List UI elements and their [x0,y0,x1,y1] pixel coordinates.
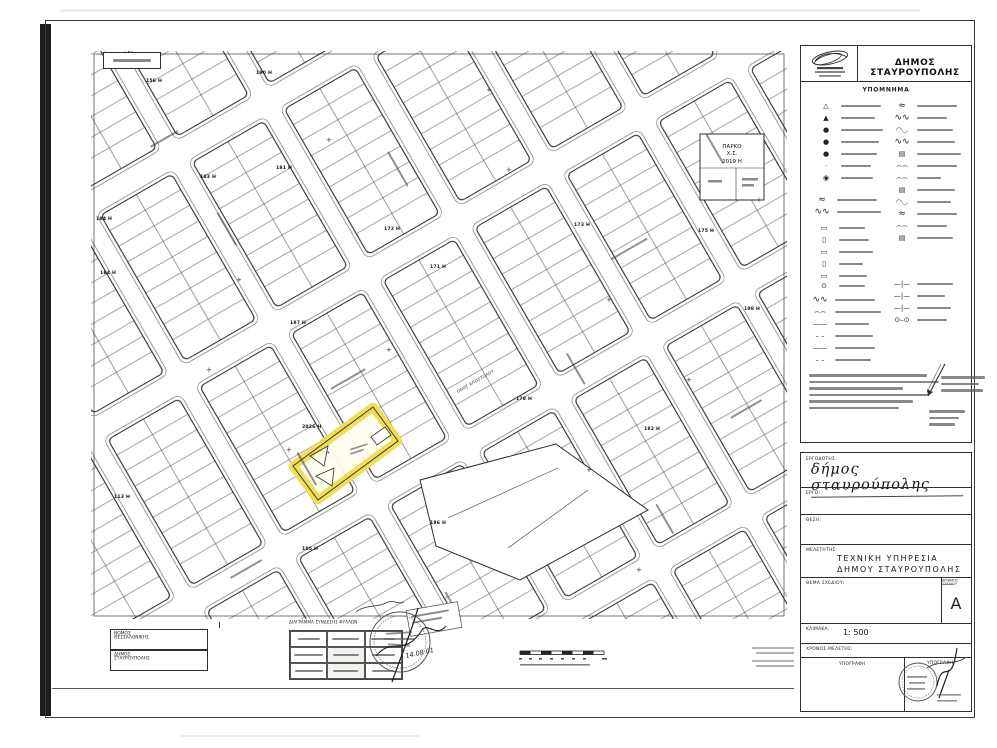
signature-stamp [893,642,973,712]
legend-label-smudge [839,263,863,266]
note-line [941,383,979,386]
note-line [809,387,903,390]
legend-label-smudge [837,199,877,202]
scan-marks [750,644,796,670]
legend-item: ∿∿ [805,294,881,306]
study-time-label: ΧΡΟΝΟΣ ΜΕΛΕΤΗΣ: [806,646,853,651]
legend-item: ● [811,136,883,148]
legend-item: ∿∿ [887,136,961,148]
sq2-symbol-icon: ▯ [809,260,839,268]
legend-item: ⊙–⊙ [887,314,953,326]
legend-item: ● [811,124,883,136]
municipality-box: ΔΗΜΟΣ ΣΤΑΥΡΟΥΠΟΛΗΣ [110,650,208,671]
legend-label-smudge [839,227,865,230]
legend-item: ⌢⌢ [887,172,961,184]
legend-item: – – [805,330,881,342]
prefecture-line2: ΘΕΣΣΑΛΟΝΙΚΗΣ [114,635,164,639]
note-line [809,400,913,403]
wave-symbol-icon: ∿∿ [887,114,917,122]
legend-item: ⌢⌢ [887,160,961,172]
legend-label-smudge [837,211,881,214]
arc-symbol-icon: ⌢⌢ [887,174,917,182]
arc-symbol-icon: ⌢⌢ [887,162,917,170]
park-block: ΠΑΡΚΟ Χ.Σ. 2019 Η [700,134,764,200]
panel-header: ΔΗΜΟΣ ΣΤΑΥΡΟΥΠΟΛΗΣ [800,45,972,83]
legend-label-smudge [917,165,957,168]
signature-label-left: ΥΠΟΓΡΑΦΗ [839,661,866,666]
legend-item: ∿∿ [807,206,881,218]
legend-label-smudge [835,335,873,338]
wave-symbol-icon: ∿∿ [807,208,837,216]
tick-symbol-icon: —|— [887,292,917,300]
wave-symbol-icon: ∿∿ [887,138,917,146]
sq-symbol-icon: ▭ [809,272,839,280]
legend-item: ● [811,148,883,160]
legend-item: ▤ [887,148,961,160]
legend-label-smudge [917,201,951,204]
legend-item: —|— [887,302,953,314]
pole-symbol-icon: ⊙ [809,282,839,290]
legend-label-smudge [917,283,953,286]
legend-label-smudge [835,347,875,350]
legend-item: ▤ [887,232,961,244]
scan-artifact [180,735,420,737]
header-divider [857,46,858,82]
project-row: ΕΡΓΟ: [801,487,971,515]
hatch-symbol-icon: ▤ [887,186,917,194]
hatch-symbol-icon: ▤ [887,234,917,242]
legend-item: ≈ [807,194,881,206]
legend-label-smudge [841,117,875,120]
legend-label-smudge [917,177,941,180]
drawing-number-label2: ΣΧΕΔΙΟΥ [942,582,954,585]
dash-symbol-icon: – – [805,356,835,364]
svg-text:Χ.Σ.: Χ.Σ. [727,151,738,157]
wave2-symbol-icon: ≈ [807,196,837,204]
blob-symbol-icon: ◠◡ [887,126,917,134]
legend-item: △ [811,100,883,112]
legend-item: —— [805,342,881,354]
arc-symbol-icon: ⌢⌢ [887,222,917,230]
stamp-date: 14.08.01 [405,646,435,660]
scale-row: ΚΛΙΜΑΚΑ: 1: 500 [801,623,971,644]
approval-stamp: 14.08.01 [348,596,478,688]
legend-label-smudge [917,319,947,322]
legend-label-smudge [841,177,873,180]
legend-item: ▯ [809,234,873,246]
legend-label-smudge [841,129,883,132]
svg-text:ΠΑΡΚΟ: ΠΑΡΚΟ [722,144,742,150]
tick-symbol-icon: —|— [887,304,917,312]
legend-item: ◉ [811,172,883,184]
legend-label-smudge [917,295,945,298]
legend-label-smudge [835,359,871,362]
note-line [941,376,985,379]
circ-symbol-icon: ● [811,138,841,146]
designer-row: ΜΕΛΕΤΗΤΗΣ: ΤΕΧΝΙΚΗ ΥΠΗΡΕΣΙΑ ΔΗΜΟΥ ΣΤΑΥΡΟ… [801,544,971,578]
note-line [809,374,927,377]
legend-label-smudge [835,311,881,314]
legend-label-smudge [841,165,871,168]
circ-symbol-icon: ● [811,150,841,158]
trif-symbol-icon: ▲ [811,114,841,122]
legend-label-smudge [841,153,877,156]
municipality-logo [807,49,853,79]
blob-symbol-icon: ◠◡ [887,198,917,206]
sq-symbol-icon: ▭ [809,224,839,232]
legend-label-smudge [839,251,873,254]
cadastral-map: ΠΑΡΚΟ Χ.Σ. 2019 Η + [88,48,790,622]
note-line [809,394,929,397]
designer-label: ΜΕΛΕΤΗΤΗΣ: [806,547,837,552]
legend-label-smudge [917,213,957,216]
legend-label-smudge [841,141,879,144]
prefecture-box: ΝΟΜΟΣ ΘΕΣΣΑΛΟΝΙΚΗΣ [110,629,208,650]
line-symbol-icon: —— [805,320,835,328]
tri-symbol-icon: △ [811,102,841,110]
svg-text:2019 Η: 2019 Η [722,159,742,165]
notes-block [941,372,985,396]
legend-label-smudge [835,323,869,326]
legend-item: ⊙ [809,280,865,292]
employer-label: ΕΡΓΟΔΟΤΗΣ: [806,456,837,461]
hatch-symbol-icon: ▤ [887,150,917,158]
sq2-symbol-icon: ▯ [809,236,839,244]
legend-label-smudge [917,225,947,228]
diagram-cell [290,663,327,679]
drawing-subject-box: ΘΕΜΑ ΣΧΕΔΙΟΥ: [801,577,942,624]
frame-divider [52,688,794,689]
designer-value-line2: ΔΗΜΟΥ ΣΤΑΥΡΟΥΠΟΛΗΣ [837,564,961,575]
dot-symbol-icon: · [811,162,841,170]
tick-symbol-icon: —|— [887,280,917,288]
location-label: ΘΕΣΗ: [806,517,821,522]
legend-label-smudge [917,129,953,132]
legend-label-smudge [841,105,881,108]
circ-symbol-icon: ● [811,126,841,134]
legend-item: ≈ [887,208,961,220]
legend-item: ▭ [809,246,873,258]
legend-label-smudge [839,275,867,278]
legend-item: ⌢⌢ [887,220,961,232]
diagram-cell [290,647,327,663]
legend-label-smudge [917,153,961,156]
legend-box: ΥΠΟΜΝΗΜΑ △▲●●●·◉ ≈∿∿ ▭▯▭▯▭ ⊙ ∿∿⌢⌢——– –——… [800,81,972,443]
dash-symbol-icon: – – [805,332,835,340]
legend-item: – – [805,354,881,366]
legend-item: ▯ [809,258,873,270]
legend-item: ◠◡ [887,124,961,136]
wave2-symbol-icon: ≈ [887,210,917,218]
scale-label: ΚΛΙΜΑΚΑ: [806,626,830,631]
legend-item: —|— [887,290,953,302]
notes-block [929,406,965,430]
legend-item: ≈ [887,100,961,112]
drawing-number-value: A [941,594,971,613]
legend-item: ▲ [811,112,883,124]
cdot-symbol-icon: ◉ [811,174,841,182]
legend-item: ∿∿ [887,112,961,124]
designer-value-line1: ΤΕΧΝΙΚΗ ΥΠΗΡΕΣΙΑ [837,553,961,564]
legend-item: ⌢⌢ [805,306,881,318]
note-line [929,410,965,413]
scale-value: 1: 500 [843,628,869,637]
plus-mark: + [326,450,330,456]
scan-artifact [60,9,920,12]
drawing-number-box: ΑΡΙΘΜΟΣ ΣΧΕΔΙΟΥ A [941,577,971,624]
note-line [929,423,955,426]
legend-label-smudge [917,141,955,144]
note-line [941,389,983,392]
legend-item: ▤ [887,184,961,196]
legend-label-smudge [835,299,875,302]
municipality-title: ΔΗΜΟΣ ΣΤΑΥΡΟΥΠΟΛΗΣ [861,58,969,78]
diagram-cell [290,631,327,647]
note-line [809,407,899,410]
rail-symbol-icon: ⊙–⊙ [887,316,917,324]
wave-symbol-icon: ∿∿ [805,296,835,304]
legend-label-smudge [839,239,869,242]
legend-item: —— [805,318,881,330]
location-row: ΘΕΣΗ: [801,514,971,545]
legend-item: ▭ [809,222,873,234]
legend-label-smudge [917,105,957,108]
legend-item: · [811,160,883,172]
line-symbol-icon: —— [805,344,835,352]
legend-label-smudge [917,307,951,310]
legend-title: ΥΠΟΜΝΗΜΑ [822,86,950,93]
legend-item: —|— [887,278,953,290]
note-line [929,417,959,420]
legend-label-smudge [917,237,953,240]
legend-label-smudge [917,117,947,120]
legend-item: ◠◡ [887,196,961,208]
arc-symbol-icon: ⌢⌢ [805,308,835,316]
map-corner-note [103,52,161,69]
sq-symbol-icon: ▭ [809,248,839,256]
legend-label-smudge [839,285,865,288]
drawing-subject-label: ΘΕΜΑ ΣΧΕΔΙΟΥ: [806,580,845,585]
legend-label-smudge [917,189,955,192]
graphic-scale-bar [512,648,622,672]
wave2-symbol-icon: ≈ [887,102,917,110]
project-label: ΕΡΓΟ: [806,490,820,495]
municipality-line2: ΣΤΑΥΡΟΥΠΟΛΗΣ [114,656,164,660]
